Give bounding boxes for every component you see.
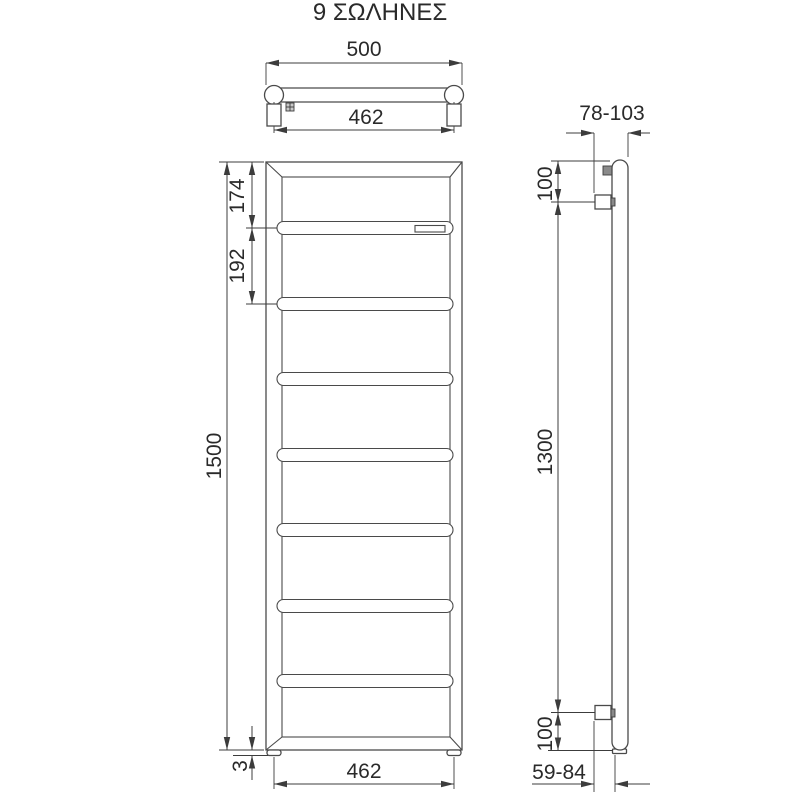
tube-rung (277, 524, 453, 537)
air-vent-cap (603, 166, 612, 175)
dim-depth-range-label: 78-103 (579, 102, 644, 125)
dim-foot-spacing: 462 (274, 757, 454, 789)
wall-bracket-left (267, 104, 281, 126)
dim-foot-spacing-label: 462 (346, 760, 381, 783)
dim-foot-height: 3 (229, 726, 268, 780)
tube-rung (277, 449, 453, 462)
dim-wall-clearance-label: 59-84 (532, 761, 586, 784)
radiator-dimension-drawing: 9 ΣΩΛΗΝΕΣ 500 462 (0, 0, 801, 800)
tube-rung (277, 373, 453, 386)
tube-rung (277, 600, 453, 613)
top-view: 500 462 (265, 38, 464, 133)
side-bracket-bottom (595, 706, 611, 720)
side-tube-right-section (445, 86, 464, 105)
dim-top-bracket-offset-label: 100 (534, 166, 557, 201)
tube-rung (277, 298, 453, 311)
dim-bracket-spacing: 462 (274, 106, 454, 130)
dim-overall-width-label: 500 (346, 38, 381, 61)
side-tube-left-section (265, 86, 284, 105)
side-view: 78-103 100 1300 100 59-84 (532, 102, 650, 792)
dim-bracket-positions: 100 1300 100 (534, 161, 613, 752)
dim-foot-height-label: 3 (229, 760, 252, 772)
dim-overall-width: 500 (266, 38, 462, 85)
dim-top-offset-label: 174 (226, 178, 249, 213)
side-tube-profile (612, 160, 628, 750)
dim-depth-range: 78-103 (566, 102, 650, 193)
side-bracket-top-pin (611, 198, 615, 206)
dim-bracket-spacing-label: 462 (348, 106, 383, 129)
tube-rung (277, 675, 453, 688)
side-bracket-bottom-pin (611, 709, 615, 717)
dim-bottom-bracket-offset-label: 100 (534, 716, 557, 751)
fixing-clip-detail-icon (286, 103, 294, 111)
front-view: 1500 174 192 3 462 (203, 162, 462, 789)
wall-bracket-right (447, 104, 461, 126)
foot-left (267, 750, 281, 756)
tube-rung (277, 222, 453, 235)
side-bracket-top (595, 195, 611, 209)
dim-tube-spacing-label: 192 (226, 248, 249, 283)
dim-bracket-distance-label: 1300 (534, 429, 557, 476)
drawing-title: 9 ΣΩΛΗΝΕΣ (313, 0, 447, 26)
foot-right (447, 750, 461, 756)
radiator-bar-top-view (266, 88, 462, 102)
dim-overall-height-label: 1500 (203, 433, 226, 480)
